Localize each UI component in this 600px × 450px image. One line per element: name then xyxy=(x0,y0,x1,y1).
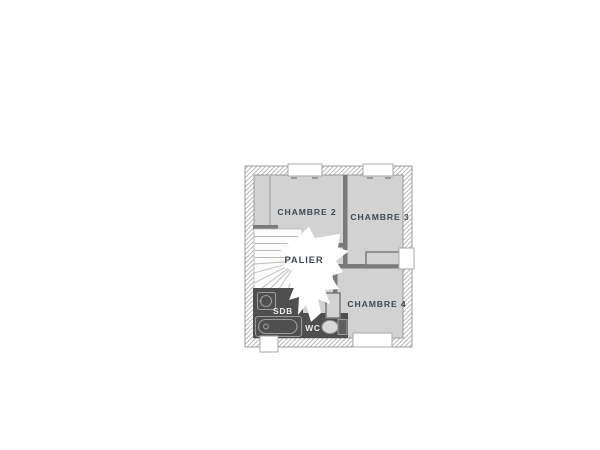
room-label-chambre2: CHAMBRE 2 xyxy=(277,207,336,217)
right-wall-niche xyxy=(399,248,414,269)
toilet-icon xyxy=(322,320,347,335)
room-label-chambre4: CHAMBRE 4 xyxy=(347,299,406,309)
wall-chambre2-chambre3 xyxy=(343,175,348,247)
window-bottom-right xyxy=(353,333,392,347)
room-label-wc: WC xyxy=(305,323,321,333)
sill-tick xyxy=(385,177,391,179)
window-bottom-left xyxy=(260,336,278,352)
sill-tick xyxy=(367,177,373,179)
closet-icon xyxy=(366,252,400,265)
door-leaf-icon xyxy=(326,293,340,318)
window-top-left xyxy=(288,164,322,176)
sill-tick xyxy=(312,177,318,179)
room-label-sdb: SDB xyxy=(273,306,293,316)
window-top-right xyxy=(363,164,393,176)
floor-plan-drawing: CHAMBRE 2 CHAMBRE 3 CHAMBRE 4 PALIER SDB… xyxy=(0,0,600,450)
floor-plan: CHAMBRE 2 CHAMBRE 3 CHAMBRE 4 PALIER SDB… xyxy=(0,0,600,450)
room-label-chambre3: CHAMBRE 3 xyxy=(350,212,409,222)
sill-tick xyxy=(291,177,297,179)
room-label-palier: PALIER xyxy=(284,254,323,265)
